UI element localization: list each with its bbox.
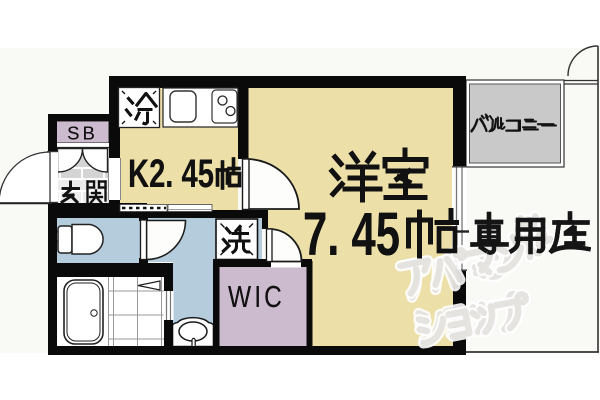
svg-text:SB: SB <box>67 123 98 144</box>
svg-text:K2. 45: K2. 45 <box>128 152 214 196</box>
svg-text:WIC: WIC <box>228 279 285 314</box>
svg-text:7. 45: 7. 45 <box>303 200 400 268</box>
